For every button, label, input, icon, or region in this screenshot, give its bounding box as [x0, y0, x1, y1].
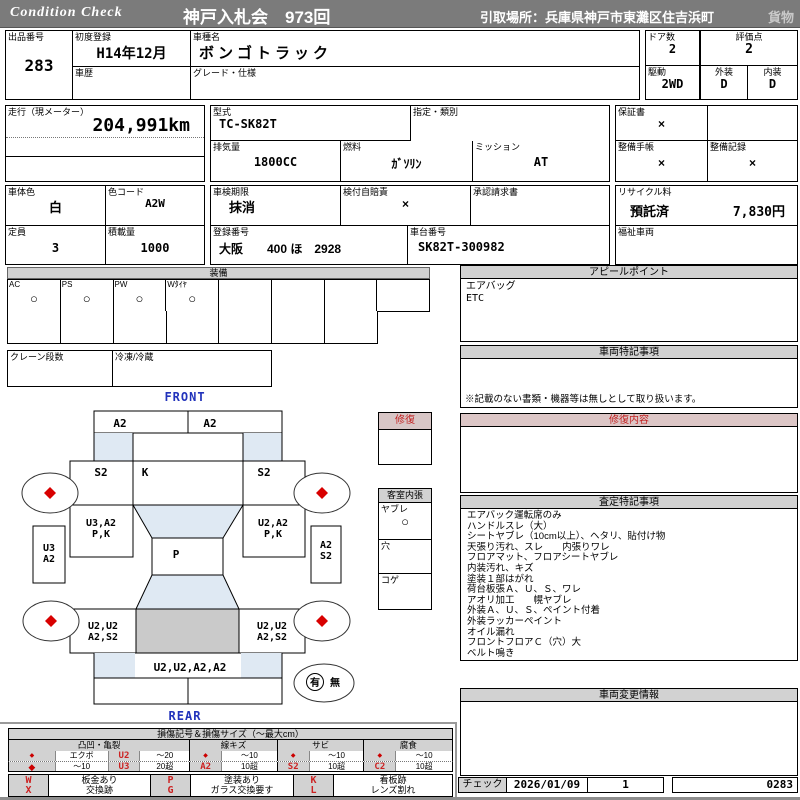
legend-row-1: ◆ エクボ U2 ～20 ◆ ～10 ◆ ～10 ◆ ～10: [8, 751, 453, 761]
zone-step-left-label-2: A2: [43, 554, 55, 565]
doors-drive-box: ドア数 2 駆動 2WD: [645, 30, 700, 100]
spare-tire-bubble: [294, 664, 354, 702]
registration-box: 車検期限 抹消 検付自賠責 × 承認請求書 登録番号 大阪 400 ほ 2928…: [210, 185, 610, 265]
inspection-expiry-label: 車検期限: [211, 186, 340, 197]
title-bar: Condition Check 神戸入札会 973回 引取場所：兵庫県神戸市東灘…: [0, 0, 800, 28]
crane-reefer-box: クレーン段数 冷凍/冷蔵: [7, 350, 272, 387]
rear-corner-right-shade: [241, 653, 282, 678]
brand-logo: Condition Check: [10, 5, 123, 21]
equipment-ps-mark: ○: [61, 291, 113, 306]
equipment-header: 装備: [7, 267, 430, 279]
diamond-icon: ◆: [9, 751, 56, 761]
legend-cell: ～10: [222, 751, 278, 761]
condition-check-sheet: Condition Check 神戸入札会 973回 引取場所：兵庫県神戸市東灘…: [0, 0, 800, 800]
change-info-panel: 車両変更情報: [460, 688, 798, 776]
zone-door-left-label-1: U3,A2: [86, 518, 116, 529]
color-code-label: 色コード: [106, 186, 204, 197]
zone-step-right-label-1: A2: [320, 540, 332, 551]
history-label: 車歴: [73, 67, 190, 78]
truck-bed: [136, 609, 239, 653]
equipment-empty-cell: [272, 311, 325, 343]
zone-door-left-label-2: P,K: [92, 529, 110, 540]
vehicle-notes-text: ※記載のない書類・機器等は無しとして取り扱います。: [465, 391, 701, 405]
jibaiseki-label: 検付自賠責: [341, 186, 470, 197]
equipment-empty-cell: [167, 311, 220, 343]
auction-title: 神戸入札会 973回: [183, 3, 330, 28]
score-label: 評価点: [701, 31, 797, 42]
lot-number-label: 出品番号: [6, 31, 72, 42]
assessment-line: 内装汚れ、キズ: [467, 564, 797, 575]
odometer-value: 204,991km: [92, 115, 190, 136]
cabin-tear-mark: ○: [379, 514, 431, 529]
repair-mini-header: 修復: [379, 413, 431, 430]
appeal-line: ETC: [466, 293, 792, 305]
legend-cell: S2: [278, 762, 310, 771]
displacement-value: 1800CC: [211, 155, 340, 169]
fuel-value: ｶﾞｿﾘﾝ: [341, 155, 472, 172]
legend-cell: A2: [190, 762, 222, 771]
crane-stages-label: クレーン段数: [8, 351, 112, 362]
cabin-burn-label: コゲ: [379, 574, 431, 585]
cab-rear-window-shade: [133, 505, 243, 538]
equipment-ac-mark: ○: [8, 291, 60, 306]
repair-content-panel: 修復内容: [460, 413, 798, 493]
doors-value: 2: [646, 42, 699, 56]
exterior-value: D: [701, 77, 747, 91]
assessment-notes-header: 査定特記事項: [461, 496, 797, 509]
legend-cell: 10超: [222, 762, 278, 771]
pillar-left-shade: [94, 433, 133, 461]
legend-code-text: 板金あり: [49, 775, 151, 785]
legend-title: 損傷記号＆損傷サイズ（～最大cm）: [8, 728, 453, 740]
legend-code-text: 交換跡: [49, 785, 151, 796]
appeal-points-panel: アピールポイント エアバッグ ETC: [460, 265, 798, 342]
equipment-ps-label: PS: [61, 280, 113, 289]
registration-number-value: 大阪 400 ほ 2928: [211, 240, 407, 257]
transmission-value: AT: [473, 155, 609, 169]
equipment-empty-cell: [325, 280, 378, 311]
equipment-wtire-label: Wﾀｲﾔ: [166, 280, 218, 289]
zone-rear-gate-label: U2,U2,A2,A2: [154, 661, 227, 674]
spare-no-label: 無: [330, 676, 340, 689]
first-registration: H14年12月: [73, 43, 190, 63]
legend-code-w: W: [9, 775, 49, 785]
appeal-points-header: アピールポイント: [461, 266, 797, 279]
zone-door-right-label-1: U2,A2: [258, 518, 288, 529]
change-info-header: 車両変更情報: [461, 689, 797, 702]
legend-cell: 20超: [140, 762, 190, 771]
zone-bed-right-label-2: A2,S2: [257, 632, 287, 643]
legend-group-row: 凸凹・亀裂 線キズ サビ 腐食: [8, 740, 453, 751]
legend-group-dents: 凸凹・亀裂: [9, 740, 190, 751]
zone-front-panel-right-label: A2: [203, 417, 216, 430]
legend-cell: U2: [109, 751, 141, 761]
recycle-box: リサイクル料 預託済 7,830円 福祉車両: [615, 185, 798, 265]
check-date: 2026/01/09: [506, 777, 588, 793]
legend-codes-row-2: X 交換跡 G ガラス交換要す L レンズ割れ: [8, 785, 453, 797]
reefer-label: 冷凍/冷蔵: [113, 351, 271, 362]
check-label: チェック: [458, 777, 507, 793]
model-name: ボンゴトラック: [191, 42, 639, 63]
lot-number: 283: [6, 56, 72, 75]
legend-cell: C2: [364, 762, 396, 771]
equipment-empty-cell: [377, 280, 429, 311]
jibaiseki-value: ×: [341, 197, 470, 211]
model-name-label: 車種名: [191, 31, 639, 42]
legend-code-text: レンズ割れ: [334, 785, 452, 796]
interior-label: 内装: [748, 66, 797, 77]
vehicle-notes-header: 車両特記事項: [461, 346, 797, 359]
capacity-label: 定員: [6, 226, 105, 237]
zone-fender-front-right-label: S2: [257, 466, 270, 479]
equipment-pw-mark: ○: [114, 291, 166, 306]
equipment-wtire-mark: ○: [166, 291, 218, 306]
class-label: 指定・類別: [411, 106, 609, 117]
fuel-label: 燃料: [341, 141, 472, 152]
spec-box: 型式 TC-SK82T 指定・類別 排気量 1800CC 燃料 ｶﾞｿﾘﾝ ミッ…: [210, 105, 610, 182]
warranty-label: 保証書: [616, 106, 707, 117]
assessment-line: エアバック運転席のみ: [467, 511, 797, 522]
score-box: 評価点 2 外装 D 内装 D: [700, 30, 798, 100]
zone-fender-front-left-label: S2: [94, 466, 107, 479]
legend-cell: 10超: [396, 762, 452, 771]
approval-request-label: 承認請求書: [471, 186, 609, 197]
repair-content-header: 修復内容: [461, 414, 797, 427]
chassis-number-label: 車台番号: [408, 226, 609, 237]
body-color-label: 車体色: [6, 186, 105, 197]
type-value: TC-SK82T: [211, 117, 410, 131]
equipment-empty-cell: [219, 280, 272, 311]
color-code-value: A2W: [106, 197, 204, 210]
color-capacity-box: 車体色 白 色コード A2W 定員 3 積載量 1000: [5, 185, 205, 265]
assessment-notes-panel: 査定特記事項 エアバック運転席のみ ハンドルスレ（大） シートヤブレ（10cm以…: [460, 495, 798, 661]
cabin-tear-label: ヤブレ: [379, 503, 431, 514]
appeal-line: エアバッグ: [466, 281, 792, 293]
legend-group-corrosion: 腐食: [364, 740, 452, 751]
legend-cell: エクボ: [56, 751, 109, 761]
assessment-line: 外装ラッカーペイント: [467, 617, 797, 628]
zone-bed-left-label-2: A2,S2: [88, 632, 118, 643]
equipment-empty-cell: [219, 311, 272, 343]
diamond-icon: ◆: [278, 751, 310, 761]
legend-code-p: P: [151, 775, 191, 785]
transmission-label: ミッション: [473, 141, 609, 152]
chassis-number-value: SK82T-300982: [408, 240, 609, 254]
maintenance-book-label: 整備手帳: [616, 141, 707, 152]
displacement-label: 排気量: [211, 141, 340, 152]
zone-cab-back-label: P: [173, 548, 180, 561]
repair-mini-box: 修復: [378, 412, 432, 465]
legend-cell: ～10: [56, 762, 109, 771]
zone-bed-right-label-1: U2,U2: [257, 621, 287, 632]
type-label: 型式: [211, 106, 410, 117]
equipment-row-2: [7, 311, 378, 344]
registration-number-label: 登録番号: [211, 226, 407, 237]
drive-value: 2WD: [646, 77, 699, 91]
equipment-empty-cell: [8, 311, 61, 343]
zone-bonnet-label: K: [142, 466, 149, 479]
doors-label: ドア数: [646, 31, 699, 42]
body-color-value: 白: [6, 197, 105, 216]
exterior-label: 外装: [701, 66, 747, 77]
legend-code-text: 看板跡: [334, 775, 452, 785]
pillar-right-shade: [243, 433, 282, 461]
odometer-box: 走行（現メーター） 204,991km: [5, 105, 205, 182]
cabin-hole-label: 穴: [379, 540, 431, 551]
maintenance-book-value: ×: [616, 156, 707, 170]
cabin-lining-box: 客室内張 ヤブレ ○ 穴 コゲ: [378, 488, 432, 610]
documents-box: 保証書 × 整備手帳 × 整備記録 ×: [615, 105, 798, 182]
diamond-icon: ◆: [364, 751, 396, 761]
zone-front-panel-left-label: A2: [113, 417, 126, 430]
legend-cell: 10超: [310, 762, 365, 771]
first-registration-label: 初度登録: [73, 31, 190, 42]
interior-value: D: [748, 77, 797, 91]
rear-corner-left-shade: [94, 653, 135, 678]
legend-group-rust: サビ: [278, 740, 365, 751]
legend-row-2: ◆ ～10 U3 20超 A2 10超 S2 10超 C2 10超: [8, 761, 453, 772]
legend-code-l: L: [294, 785, 334, 796]
zone-step-right-label-2: S2: [320, 551, 332, 562]
zone-step-left-label-1: U3: [43, 543, 55, 554]
equipment-ac-label: AC: [8, 280, 60, 289]
maintenance-record-value: ×: [708, 156, 797, 170]
welfare-vehicle-label: 福祉車両: [616, 226, 797, 237]
rear-label: REAR: [169, 709, 202, 723]
legend-group-scratch: 線キズ: [190, 740, 278, 751]
legend-cell: U3: [109, 762, 141, 771]
legend-cell: ～10: [396, 751, 452, 761]
legend-code-g: G: [151, 785, 191, 796]
score-value: 2: [701, 42, 797, 57]
divider-vertical: [455, 722, 457, 797]
vehicle-identity-box: 出品番号 283 初度登録 H14年12月 車歴 車種名 ボンゴトラック グレー…: [5, 30, 640, 100]
assessment-line: ベルト鳴き: [467, 649, 797, 660]
equipment-empty-cell: [114, 311, 167, 343]
sheet-number: 0283: [672, 777, 798, 793]
check-count: 1: [587, 777, 664, 793]
pickup-location: 引取場所：兵庫県神戸市東灘区住吉浜町: [480, 7, 714, 26]
legend-cell: ～20: [140, 751, 190, 761]
spare-yes-label: 有: [310, 676, 320, 689]
equipment-empty-cell: [272, 280, 325, 311]
zone-bed-left-label-1: U2,U2: [88, 621, 118, 632]
cab-to-bed-shade: [136, 575, 239, 609]
legend-code-text: 塗装あり: [191, 775, 294, 785]
zone-cab-back: [152, 538, 223, 575]
equipment-pw-label: PW: [114, 280, 166, 289]
diamond-icon: ◆: [9, 762, 56, 771]
legend-code-x: X: [9, 785, 49, 796]
equipment-empty-cell: [61, 311, 114, 343]
equipment-row-1: AC○ PS○ PW○ Wﾀｲﾔ○: [7, 279, 430, 312]
maintenance-record-label: 整備記録: [708, 141, 797, 152]
zone-door-right-label-2: P,K: [264, 529, 282, 540]
capacity-value: 3: [6, 241, 105, 255]
legend-code-k: K: [294, 775, 334, 785]
legend-cell: ～10: [310, 751, 365, 761]
equipment-empty-cell: [325, 311, 377, 343]
recycle-fee-label: リサイクル料: [616, 186, 797, 197]
odometer-divider-solid: [6, 156, 204, 157]
cabin-lining-header: 客室内張: [379, 489, 431, 503]
load-capacity-value: 1000: [106, 241, 204, 255]
grade-label: グレード・仕様: [191, 67, 639, 78]
assessment-line: フロントフロアＣ（穴）大: [467, 638, 797, 649]
recycle-fee: 7,830円: [733, 201, 785, 220]
legend-code-text: ガラス交換要す: [191, 785, 294, 796]
warranty-value: ×: [616, 117, 707, 131]
recycle-status: 預託済: [630, 201, 669, 220]
inspection-expiry-value: 抹消: [211, 197, 340, 216]
front-label: FRONT: [164, 390, 205, 404]
load-capacity-label: 積載量: [106, 226, 204, 237]
diamond-icon: ◆: [190, 751, 222, 761]
drive-label: 駆動: [646, 66, 699, 77]
cargo-tag: 貨物: [768, 7, 794, 26]
vehicle-notes-panel: 車両特記事項 ※記載のない書類・機器等は無しとして取り扱います。: [460, 345, 798, 408]
odometer-divider-dotted: [6, 137, 204, 138]
